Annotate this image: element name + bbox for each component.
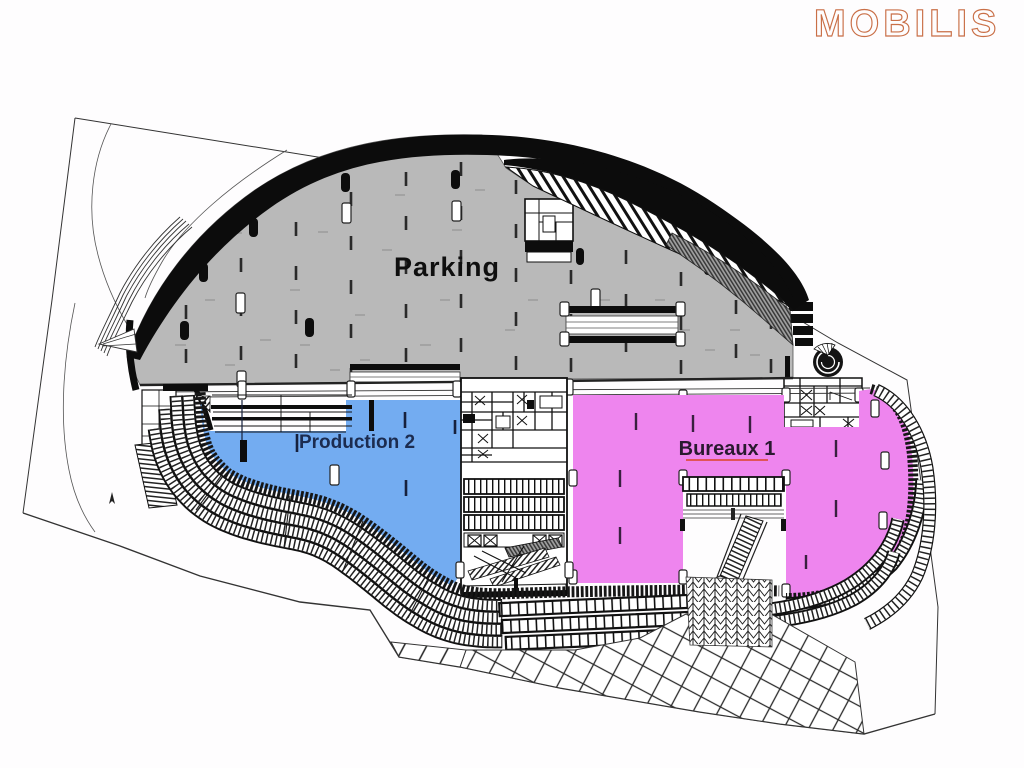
svg-text:Production 2: Production 2: [299, 432, 415, 453]
svg-text:MOBILIS: MOBILIS: [814, 3, 1000, 45]
svg-text:Bureaux 1: Bureaux 1: [679, 438, 776, 460]
svg-text:Parking: Parking: [394, 252, 500, 282]
